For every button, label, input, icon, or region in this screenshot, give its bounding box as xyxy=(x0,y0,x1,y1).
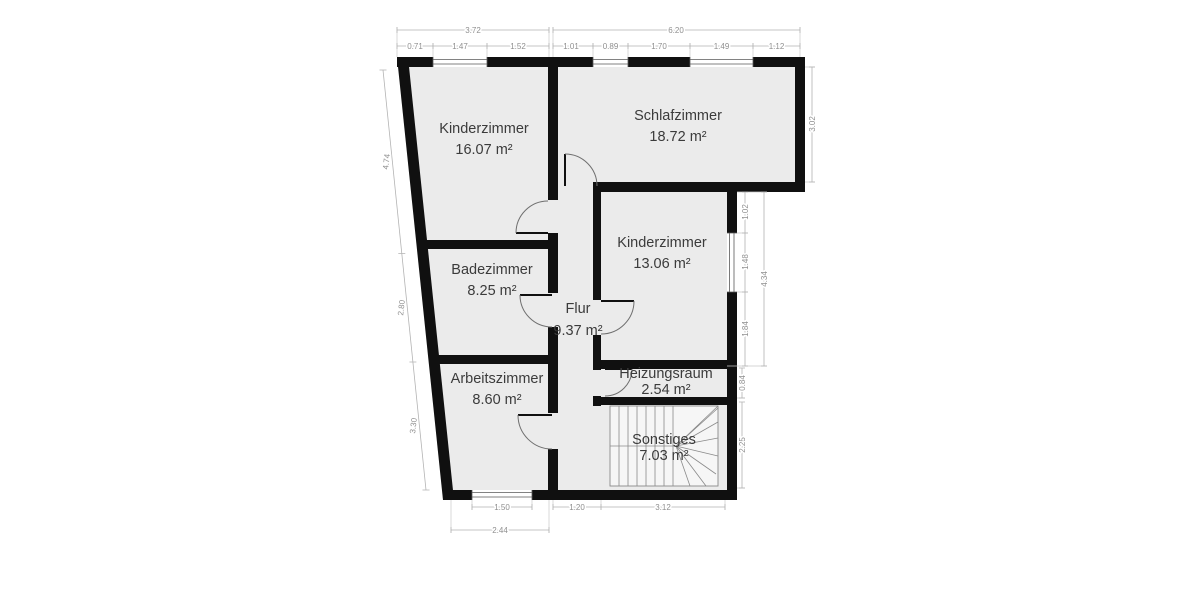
dim-top-secondary-3: 1.01 xyxy=(563,42,579,51)
dimensions-top: 3.72 6.20 0.71 1.47 1.52 1.01 0.89 1.70 … xyxy=(397,26,800,57)
dim-right-6: 2.25 xyxy=(738,437,747,453)
dim-left-0: 4.74 xyxy=(381,153,392,170)
room-area-kinderzimmer-2: 13.06 m² xyxy=(633,256,690,272)
dim-bottom-3: 2.44 xyxy=(492,526,508,535)
dim-right-3: 1.84 xyxy=(741,321,750,337)
dim-bottom-1: 1.20 xyxy=(569,503,585,512)
room-area-kinderzimmer-1: 16.07 m² xyxy=(455,142,512,158)
room-area-arbeitszimmer: 8.60 m² xyxy=(472,392,521,408)
dim-bottom-0: 1.50 xyxy=(494,503,510,512)
dim-right-2: 1.48 xyxy=(741,254,750,270)
dim-top-secondary-7: 1.12 xyxy=(769,42,785,51)
dim-top-primary-0: 3.72 xyxy=(465,26,481,35)
dim-top-primary-1: 6.20 xyxy=(668,26,684,35)
room-label-sonstiges: Sonstiges xyxy=(632,432,696,448)
room-label-badezimmer: Badezimmer xyxy=(451,262,533,278)
dim-top-secondary-6: 1.49 xyxy=(714,42,730,51)
floorplan-canvas: Kinderzimmer 16.07 m² Schlafzimmer 18.72… xyxy=(0,0,1200,600)
room-label-heizungsraum: Heizungsraum xyxy=(619,366,713,382)
dim-right-5: 0.84 xyxy=(738,375,747,391)
dim-right-4: 4.34 xyxy=(760,271,769,287)
room-label-schlafzimmer: Schlafzimmer xyxy=(634,108,722,124)
dim-top-secondary-5: 1.70 xyxy=(651,42,667,51)
room-label-kinderzimmer-1: Kinderzimmer xyxy=(439,121,529,137)
dim-top-secondary-1: 1.47 xyxy=(452,42,468,51)
dim-top-secondary-0: 0.71 xyxy=(407,42,423,51)
room-area-flur: 9.37 m² xyxy=(553,323,602,339)
room-area-heizungsraum: 2.54 m² xyxy=(641,382,690,398)
window-kinderzimmer-top xyxy=(433,57,487,67)
dim-bottom-2: 3.12 xyxy=(655,503,671,512)
dim-left-1: 2.80 xyxy=(396,299,407,316)
window-schlafzimmer-right xyxy=(690,57,753,67)
dim-right-0: 3.02 xyxy=(808,116,817,132)
dim-right-1: 1.02 xyxy=(741,204,750,220)
room-label-arbeitszimmer: Arbeitszimmer xyxy=(451,371,544,387)
dim-left-2: 3.30 xyxy=(408,417,419,434)
room-area-schlafzimmer: 18.72 m² xyxy=(649,129,706,145)
window-kinderzimmer2-east xyxy=(727,233,737,292)
room-label-flur: Flur xyxy=(566,301,591,317)
room-area-sonstiges: 7.03 m² xyxy=(639,448,688,464)
dim-top-secondary-4: 0.89 xyxy=(603,42,619,51)
window-arbeitszimmer-bottom xyxy=(472,490,532,500)
dimensions-bottom: 1.50 1.20 3.12 2.44 xyxy=(451,500,725,535)
floor-plan: Kinderzimmer 16.07 m² Schlafzimmer 18.72… xyxy=(0,0,1200,600)
window-schlafzimmer-left xyxy=(593,57,628,67)
dim-top-secondary-2: 1.52 xyxy=(510,42,526,51)
room-area-badezimmer: 8.25 m² xyxy=(467,283,516,299)
room-label-kinderzimmer-2: Kinderzimmer xyxy=(617,235,707,251)
